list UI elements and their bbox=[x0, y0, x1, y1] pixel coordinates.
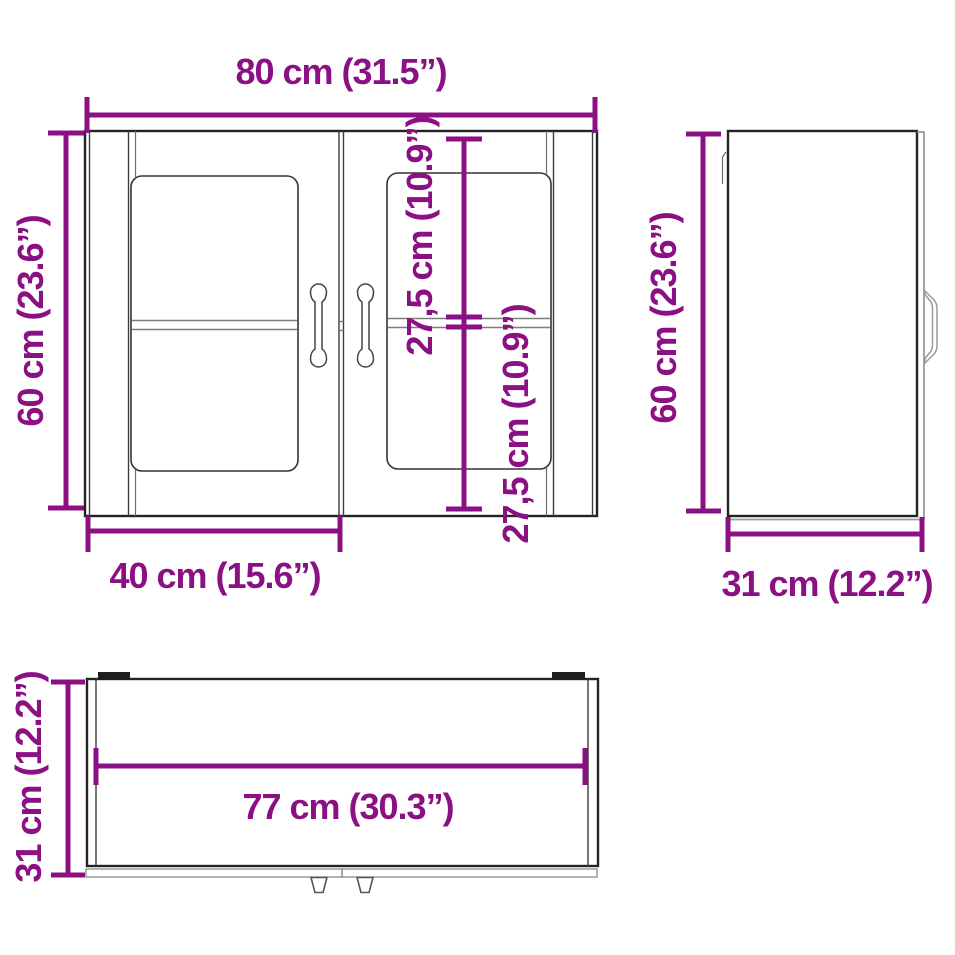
wall-hanger-mark bbox=[723, 152, 727, 184]
dim-front-door-width-label: 40 cm (15.6”) bbox=[109, 558, 320, 594]
dim-front-width-label: 80 cm (31.5”) bbox=[235, 54, 446, 90]
side-door-handle bbox=[925, 291, 937, 363]
dim-side-height-label: 60 cm (23.6”) bbox=[646, 212, 682, 423]
dim-top-inner-width bbox=[96, 748, 585, 785]
dim-side-depth bbox=[728, 517, 922, 552]
dim-front-sections bbox=[446, 139, 482, 509]
dim-front-upper-section-label: 27,5 cm (10.9”) bbox=[402, 116, 438, 355]
top-view bbox=[86, 672, 598, 893]
dim-front-width bbox=[85, 97, 597, 133]
top-cabinet-outline bbox=[87, 679, 598, 866]
left-door-glass-panel bbox=[131, 176, 298, 471]
dim-front-door-width bbox=[88, 516, 340, 552]
dimension-diagram-canvas: 80 cm (31.5”) 60 cm (23.6”) 27,5 cm (10.… bbox=[0, 0, 955, 955]
dim-side-depth-label: 31 cm (12.2”) bbox=[721, 566, 932, 602]
wall-bracket-left bbox=[98, 672, 130, 680]
technical-drawing bbox=[0, 0, 955, 955]
shelf-line bbox=[132, 319, 550, 331]
dim-front-height bbox=[48, 133, 84, 508]
top-view-right-handle bbox=[357, 878, 373, 893]
dim-side-height bbox=[686, 134, 721, 511]
dim-front-lower-section-label: 27,5 cm (10.9”) bbox=[498, 304, 534, 543]
dim-top-depth-label: 31 cm (12.2”) bbox=[11, 671, 47, 882]
top-view-left-handle bbox=[311, 878, 327, 893]
side-cabinet-outline bbox=[728, 131, 917, 516]
right-door-handle bbox=[358, 284, 374, 367]
dim-front-height-label: 60 cm (23.6”) bbox=[13, 215, 49, 426]
side-view bbox=[723, 131, 938, 520]
dim-top-depth bbox=[51, 682, 85, 875]
dimension-lines bbox=[48, 97, 922, 875]
left-door-handle bbox=[311, 284, 327, 367]
wall-bracket-right bbox=[552, 672, 585, 680]
dim-top-inner-width-label: 77 cm (30.3”) bbox=[242, 789, 453, 825]
